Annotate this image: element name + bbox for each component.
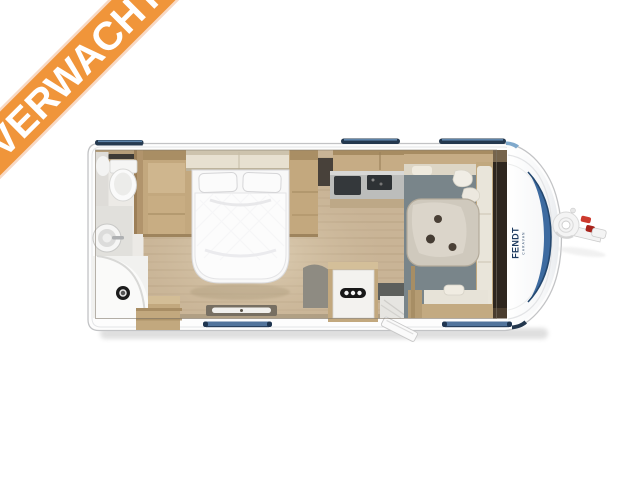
- svg-text:CARAVAN: CARAVAN: [522, 231, 526, 254]
- svg-text:FENDT: FENDT: [511, 227, 521, 259]
